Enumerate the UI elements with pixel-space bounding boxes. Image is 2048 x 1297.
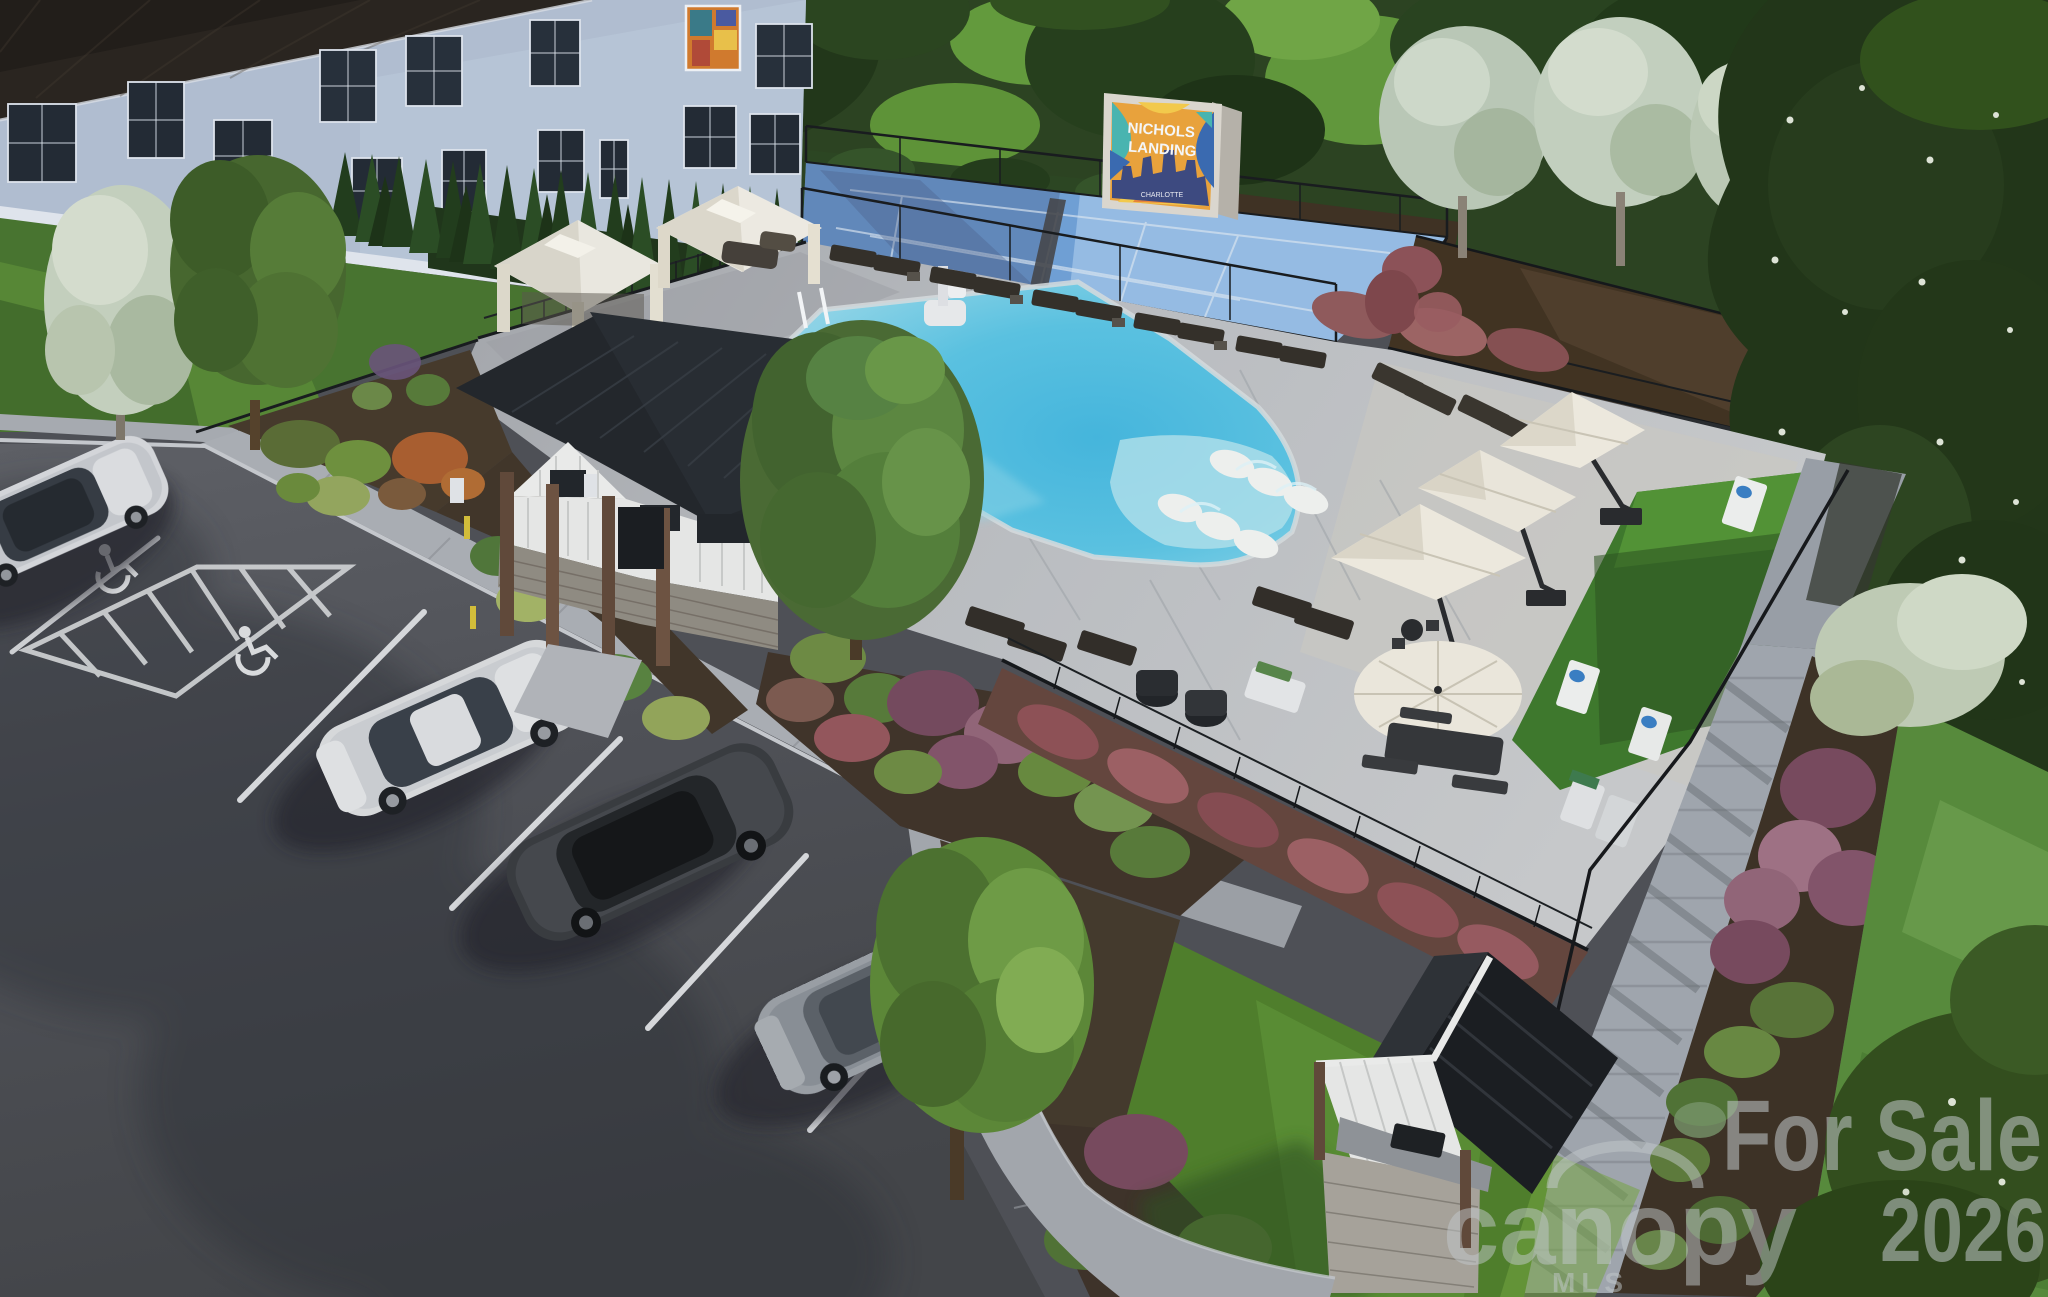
svg-text:2026: 2026 xyxy=(1880,1181,2046,1281)
svg-text:MLS: MLS xyxy=(1552,1267,1629,1297)
svg-text:CHARLOTTE: CHARLOTTE xyxy=(1141,192,1184,199)
